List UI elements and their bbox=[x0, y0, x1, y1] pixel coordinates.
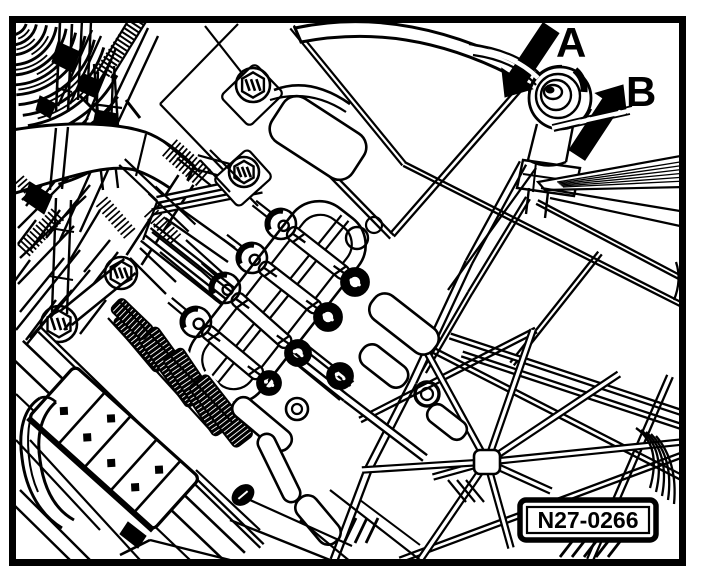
svg-text:N27-0266: N27-0266 bbox=[537, 507, 638, 533]
svg-text:B: B bbox=[626, 68, 656, 115]
svg-text:A: A bbox=[556, 19, 586, 66]
